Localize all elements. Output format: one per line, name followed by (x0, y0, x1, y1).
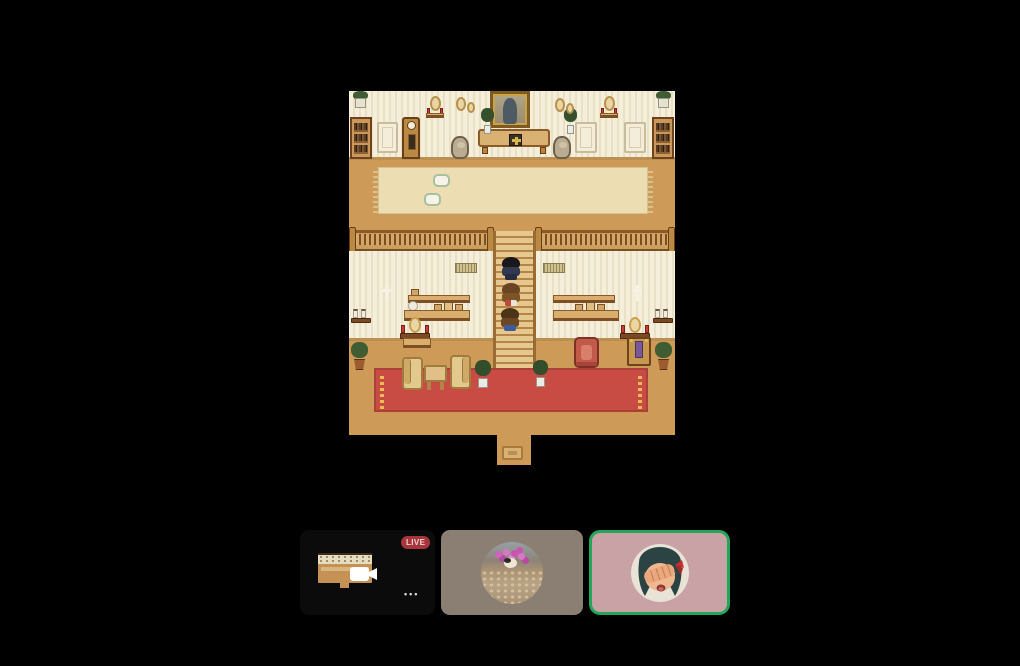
portrait-shelf (426, 113, 444, 118)
game-character (502, 283, 520, 306)
coffee-table (424, 365, 447, 390)
exit-doormat (502, 446, 523, 460)
participant-tile-speaking[interactable] (589, 530, 730, 615)
wall-vent (455, 263, 477, 273)
hanging-plant (353, 91, 368, 108)
wall-shelf (553, 310, 619, 321)
bottle-shelf (351, 318, 371, 323)
live-badge: LIVE (401, 536, 430, 549)
balustrade (351, 230, 492, 251)
armchair (574, 337, 599, 368)
bottle (663, 309, 668, 318)
bookshelf (350, 117, 372, 159)
game-character (501, 308, 519, 331)
participant-tile[interactable] (441, 530, 583, 615)
bench (403, 338, 431, 348)
bottle (353, 309, 358, 318)
wicker-chair (402, 357, 423, 390)
area-rug (378, 167, 648, 214)
grandfather-clock (402, 117, 420, 159)
wall-cross (633, 285, 642, 301)
more-options-icon[interactable]: ••• (404, 590, 419, 599)
stream-preview-tile[interactable]: LIVE ••• (300, 530, 435, 615)
wall-portrait-oval (566, 103, 574, 114)
game-viewport[interactable] (349, 91, 675, 435)
door (377, 122, 398, 153)
potted-plant (655, 342, 672, 370)
wicker-chair (450, 355, 471, 389)
potted-plant (475, 360, 491, 388)
video-camera-icon (349, 563, 379, 585)
statue (553, 136, 571, 159)
large-portrait (490, 91, 530, 128)
wall-cross (382, 285, 391, 301)
hanging-plant (656, 91, 671, 108)
statue (451, 136, 469, 159)
wall-portrait-oval (555, 98, 565, 112)
table-leg (540, 147, 546, 154)
altar-plant (481, 108, 494, 134)
portrait-shelf (600, 113, 618, 118)
potted-plant (351, 342, 368, 370)
prayer-book (509, 134, 522, 146)
exit-passage (497, 435, 531, 465)
avatar (481, 542, 543, 604)
avatar (631, 544, 689, 602)
table-leg (482, 147, 488, 154)
prayer-desk (627, 337, 651, 366)
bottle (655, 309, 660, 318)
floor-cushion (433, 174, 450, 187)
wall-portrait-oval (467, 102, 475, 113)
bottle (361, 309, 366, 318)
door (624, 122, 646, 153)
wall-shelf (408, 295, 470, 303)
shrine (620, 317, 650, 339)
bottle-shelf (653, 318, 673, 323)
balustrade (537, 230, 673, 251)
wall-vent (543, 263, 565, 273)
wall-portrait-oval (456, 97, 466, 111)
bookshelf (652, 117, 674, 159)
flower-crown (495, 551, 502, 558)
shrine (400, 317, 430, 339)
potted-plant (533, 360, 548, 387)
game-character (502, 257, 520, 280)
wall-shelf (553, 295, 615, 303)
floor-cushion (424, 193, 441, 206)
door (575, 122, 597, 153)
